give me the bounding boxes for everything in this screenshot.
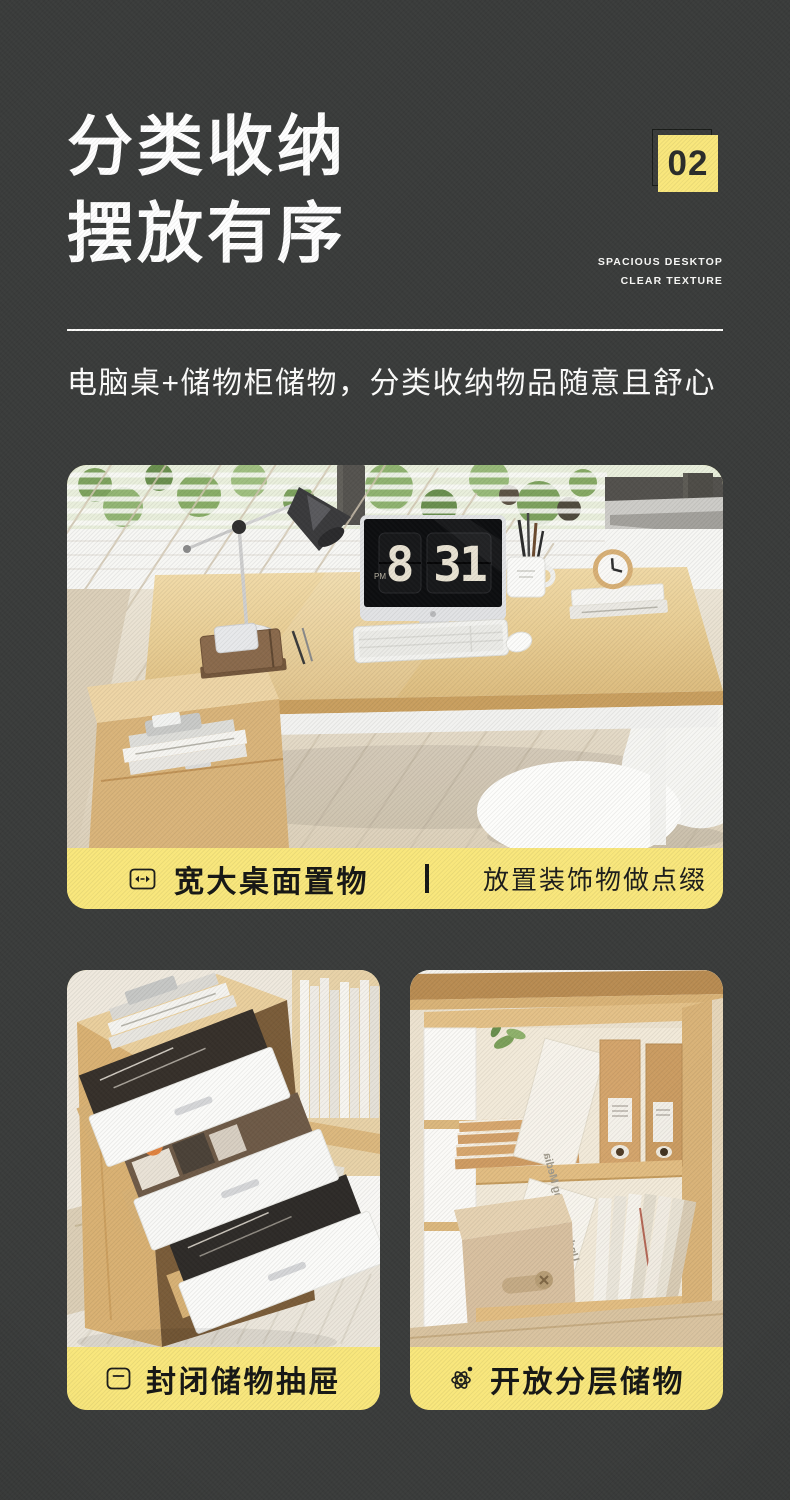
- caption-divider: [425, 864, 429, 893]
- divider-line: [67, 329, 723, 331]
- width-arrows-icon: [129, 868, 156, 890]
- drawers-scene-photo: [67, 970, 380, 1347]
- main-feature-card: 8 31 PM: [67, 465, 723, 909]
- desk-leg-right: [650, 717, 666, 845]
- title-line-2: 摆放有序: [67, 196, 347, 270]
- atom-icon: [448, 1365, 475, 1392]
- shelves-scene-photo: Understanding Media: [410, 970, 723, 1347]
- tagline-line-1: SPACIOUS DESKTOP: [598, 253, 723, 272]
- clock-hour: 8: [386, 537, 415, 593]
- tagline-line-2: CLEAR TEXTURE: [598, 272, 723, 291]
- file-box-2: [646, 1044, 682, 1166]
- desk-scene-photo: 8 31 PM: [67, 465, 723, 848]
- clock-meridiem: PM: [374, 572, 386, 581]
- main-caption-primary: 宽大桌面置物: [174, 857, 369, 901]
- intro-text: 电脑桌+储物柜储物，分类收纳物品随意且舒心: [67, 358, 716, 402]
- file-box-1: [600, 1040, 640, 1166]
- main-caption-secondary: 放置装饰物做点缀: [483, 860, 707, 897]
- promo-page: { "page": { "background_color": "#3a3c3b…: [0, 0, 790, 1500]
- drawer-icon: [106, 1367, 131, 1390]
- main-caption-bar: 宽大桌面置物 放置装饰物做点缀: [67, 848, 723, 909]
- keyboard: [353, 619, 509, 663]
- section-number-badge: 02: [658, 135, 718, 192]
- drawers-feature-card: 封闭储物抽屉: [67, 970, 380, 1410]
- drawers-caption-bar: 封闭储物抽屉: [67, 1347, 380, 1410]
- page-title: 分类收纳摆放有序: [67, 103, 347, 277]
- tagline: SPACIOUS DESKTOP CLEAR TEXTURE: [598, 253, 723, 291]
- section-number: 02: [668, 144, 709, 184]
- shelves-caption-bar: 开放分层储物: [410, 1347, 723, 1410]
- title-line-1: 分类收纳: [67, 109, 347, 183]
- shelves-caption: 开放分层储物: [490, 1357, 685, 1401]
- shelf-side-panel: [682, 1000, 712, 1330]
- shelves-feature-card: Understanding Media: [410, 970, 723, 1410]
- drawers-caption: 封闭储物抽屉: [146, 1357, 341, 1401]
